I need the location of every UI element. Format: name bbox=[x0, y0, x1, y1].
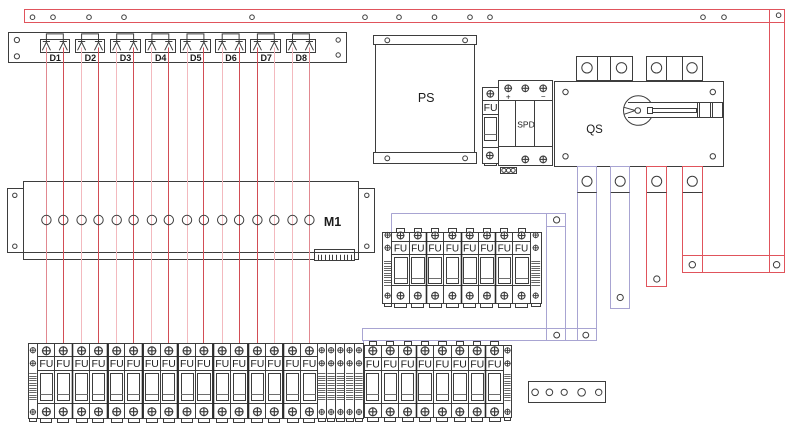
svg-text:D7: D7 bbox=[260, 53, 272, 63]
svg-text:SPD: SPD bbox=[517, 120, 534, 130]
svg-text:D8: D8 bbox=[296, 53, 308, 63]
svg-text:FU: FU bbox=[498, 244, 511, 255]
svg-text:FU: FU bbox=[411, 244, 424, 255]
svg-text:−: − bbox=[541, 92, 546, 101]
svg-text:D5: D5 bbox=[190, 53, 202, 63]
svg-text:FU: FU bbox=[383, 359, 397, 371]
svg-text:FU: FU bbox=[302, 358, 316, 370]
svg-text:FU: FU bbox=[180, 358, 194, 370]
svg-text:FU: FU bbox=[401, 359, 415, 371]
svg-text:FU: FU bbox=[110, 358, 124, 370]
svg-text:FU: FU bbox=[92, 358, 106, 370]
svg-text:D1: D1 bbox=[49, 53, 61, 63]
svg-text:FU: FU bbox=[470, 359, 484, 371]
svg-text:FU: FU bbox=[446, 244, 459, 255]
svg-text:D4: D4 bbox=[155, 53, 167, 63]
svg-text:FU: FU bbox=[145, 358, 159, 370]
svg-text:FU: FU bbox=[366, 359, 380, 371]
svg-text:FU: FU bbox=[127, 358, 141, 370]
svg-text:FU: FU bbox=[428, 244, 441, 255]
svg-text:FU: FU bbox=[39, 358, 53, 370]
svg-text:FU: FU bbox=[215, 358, 229, 370]
svg-text:FU: FU bbox=[75, 358, 89, 370]
svg-text:FU: FU bbox=[267, 358, 281, 370]
svg-text:M1: M1 bbox=[324, 215, 341, 229]
svg-text:FU: FU bbox=[480, 244, 493, 255]
svg-text:FU: FU bbox=[250, 358, 264, 370]
svg-text:D3: D3 bbox=[120, 53, 132, 63]
svg-text:+: + bbox=[506, 93, 511, 102]
svg-text:FU: FU bbox=[418, 359, 432, 371]
svg-text:QS: QS bbox=[586, 124, 603, 136]
svg-text:FU: FU bbox=[162, 358, 176, 370]
svg-text:FU: FU bbox=[286, 358, 300, 370]
svg-text:FU: FU bbox=[484, 102, 498, 114]
svg-text:PS: PS bbox=[418, 91, 435, 105]
svg-text:FU: FU bbox=[197, 358, 211, 370]
svg-text:FU: FU bbox=[232, 358, 246, 370]
svg-text:FU: FU bbox=[488, 359, 502, 371]
svg-text:FU: FU bbox=[453, 359, 467, 371]
svg-text:D2: D2 bbox=[85, 53, 97, 63]
svg-text:FU: FU bbox=[435, 359, 449, 371]
svg-text:FU: FU bbox=[394, 244, 407, 255]
svg-text:FU: FU bbox=[515, 244, 528, 255]
svg-text:FU: FU bbox=[56, 358, 70, 370]
svg-text:FU: FU bbox=[463, 244, 476, 255]
svg-text:D6: D6 bbox=[225, 53, 237, 63]
